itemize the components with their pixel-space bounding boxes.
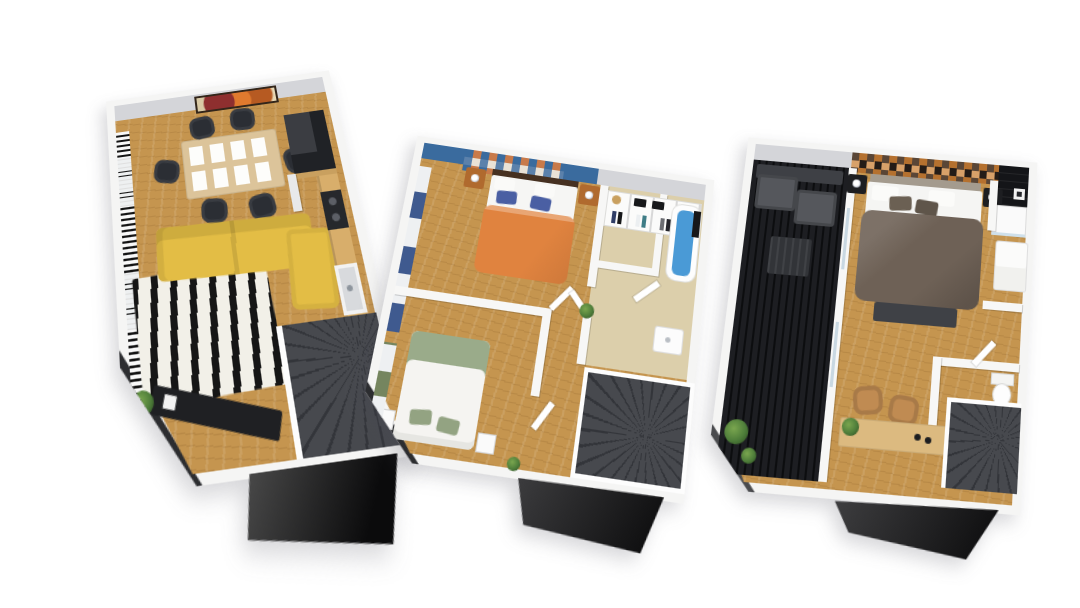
shower-head [1013, 188, 1025, 200]
taupe-duvet [854, 209, 984, 311]
floor-plan-2 [352, 136, 714, 504]
lamp [585, 191, 594, 200]
clothes [617, 212, 623, 225]
placemats [189, 136, 277, 191]
dining-chair [153, 159, 181, 184]
floor2-walls [352, 136, 714, 504]
white-nightstand [374, 408, 396, 430]
outdoor-sofa-cushion [754, 174, 798, 212]
clothes [611, 211, 617, 224]
bag [652, 201, 665, 211]
floor3-walls [704, 137, 1037, 515]
lamp [470, 174, 479, 183]
white-nightstand [475, 432, 497, 455]
desk-accessory [925, 437, 932, 444]
clothes [641, 215, 646, 228]
staircase [941, 397, 1021, 494]
blue-pillow [496, 190, 518, 205]
floor-plan-3 [704, 137, 1037, 515]
bathroom-sink [653, 327, 683, 355]
green-pillow [409, 409, 432, 425]
black-nightstand [847, 174, 868, 195]
clothes [659, 218, 664, 231]
hat [611, 195, 621, 205]
nightstand [578, 184, 601, 207]
orange-duvet [473, 204, 576, 285]
floor-plan-canvas [0, 0, 1080, 608]
taupe-pillow [889, 196, 911, 210]
dining-chair [229, 108, 255, 131]
coffee-table [767, 236, 812, 277]
desk-chair [852, 385, 883, 416]
nightstand [463, 167, 487, 190]
outdoor-sofa-cushion [793, 189, 837, 227]
clothes [635, 214, 640, 227]
desk-accessory [914, 434, 921, 441]
bag [634, 198, 647, 208]
dining-chair [201, 198, 228, 223]
staircase [570, 367, 695, 494]
vanity-unit [994, 241, 1027, 291]
lamp [852, 179, 861, 188]
